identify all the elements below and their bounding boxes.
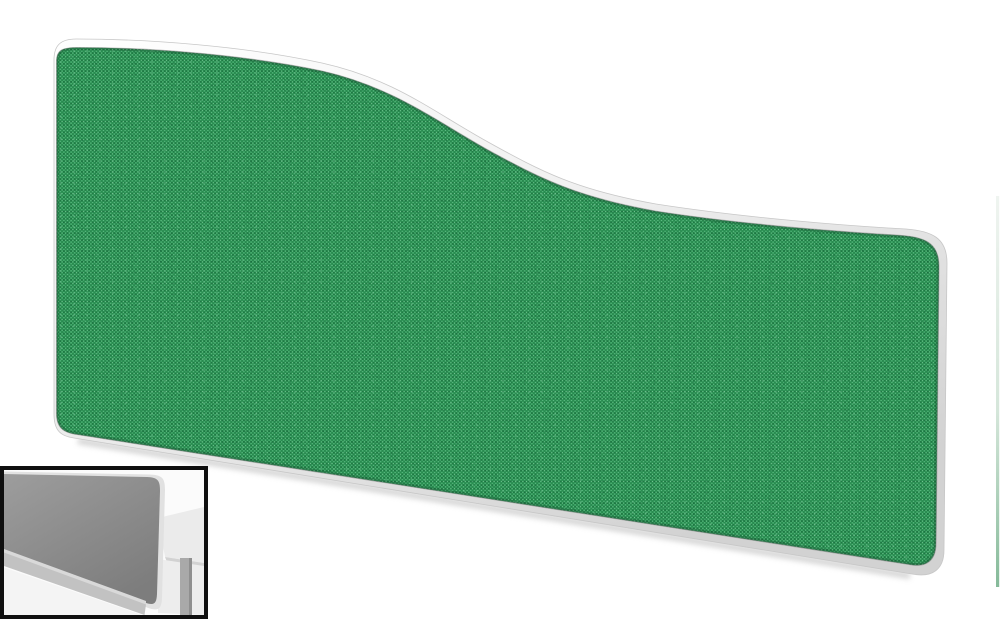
- product-photo-canvas: [0, 0, 1000, 619]
- inset-desk-leg-shade: [189, 558, 192, 615]
- inset-content: [4, 470, 204, 615]
- inset-thumbnail: [0, 466, 208, 619]
- product-photo: [0, 0, 1000, 619]
- right-edge-artifact: [996, 196, 999, 587]
